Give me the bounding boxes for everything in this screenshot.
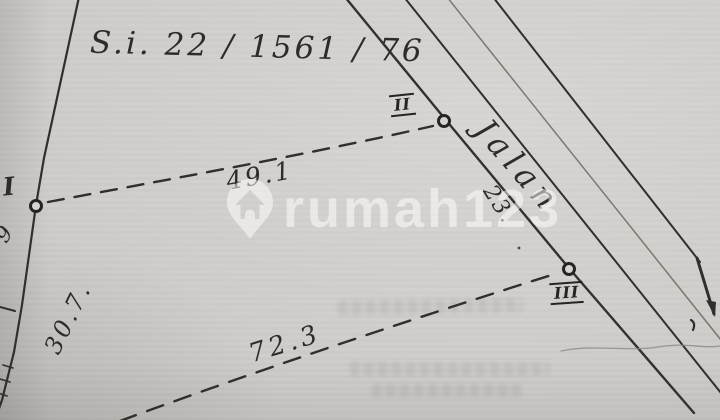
point-I-marker (31, 201, 42, 212)
point-III-label: III (549, 281, 584, 305)
bleedthrough-smudge (350, 362, 550, 376)
point-II-marker (439, 116, 450, 127)
road-edge-line-4 (493, 0, 700, 262)
point-III-marker (564, 264, 575, 275)
boundary-tick-marks (0, 365, 13, 396)
survey-sketch-paper: S.i. 22 / 1561 / 76 Jalan 49.1 23. 30.7.… (0, 0, 720, 420)
road-edge-line-2 (404, 0, 720, 418)
left-stub-line (0, 307, 15, 311)
point-I-label: I (2, 173, 16, 199)
road-arrow-head (706, 300, 716, 317)
dashed-line-bottom-to-iii (120, 273, 558, 420)
ink-dot (518, 247, 521, 250)
bleedthrough-smudge (372, 384, 522, 397)
point-II-label: II (389, 93, 416, 117)
reference-number: S.i. 22 / 1561 / 76 (90, 28, 425, 68)
stray-comma-mark (691, 320, 694, 330)
